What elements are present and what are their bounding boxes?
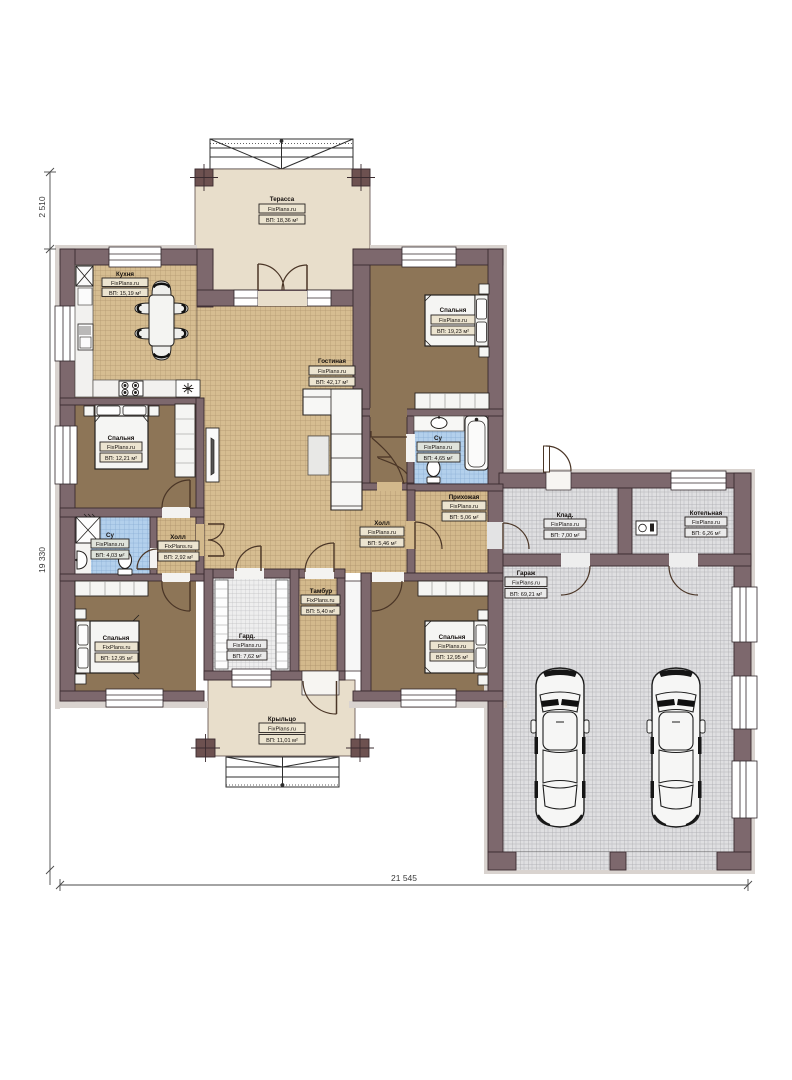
svg-text:2 510: 2 510: [37, 196, 47, 218]
svg-text:Холл: Холл: [374, 520, 390, 527]
svg-text:FixPlans.ru: FixPlans.ru: [318, 369, 346, 375]
svg-text:ВП: 15,19 м²: ВП: 15,19 м²: [109, 291, 141, 297]
svg-text:Прихожая: Прихожая: [449, 494, 480, 501]
svg-text:Крыльцо: Крыльцо: [268, 716, 296, 723]
svg-text:ВП: 4,65 м²: ВП: 4,65 м²: [423, 456, 452, 462]
svg-text:FixPlans.ru: FixPlans.ru: [692, 520, 720, 526]
svg-text:ВП: 7,00 м²: ВП: 7,00 м²: [550, 533, 579, 539]
svg-text:FixPlans.ru: FixPlans.ru: [424, 445, 452, 451]
svg-text:FixPlans.ru: FixPlans.ru: [307, 598, 335, 604]
svg-text:Су: Су: [106, 532, 114, 539]
svg-text:Спальня: Спальня: [108, 435, 135, 442]
svg-text:Тамбур: Тамбур: [310, 588, 333, 595]
svg-text:21 545: 21 545: [391, 873, 417, 883]
svg-text:FixPlans.ru: FixPlans.ru: [268, 727, 296, 733]
svg-text:FixPlans.ru: FixPlans.ru: [103, 645, 131, 651]
svg-text:FixPlans.ru: FixPlans.ru: [268, 207, 296, 213]
svg-text:19 330: 19 330: [37, 547, 47, 573]
svg-text:FixPlans.ru: FixPlans.ru: [450, 504, 478, 510]
svg-text:FixPlans.ru: FixPlans.ru: [439, 318, 467, 324]
svg-text:Котельная: Котельная: [690, 510, 723, 517]
svg-text:FixPlans.ru: FixPlans.ru: [551, 522, 579, 528]
svg-text:ВП: 18,36 м²: ВП: 18,36 м²: [266, 218, 298, 224]
svg-text:ВП: 4,03 м²: ВП: 4,03 м²: [95, 553, 124, 559]
svg-text:ВП: 11,01 м²: ВП: 11,01 м²: [266, 738, 298, 744]
svg-text:ВП: 42,17 м²: ВП: 42,17 м²: [316, 380, 348, 386]
svg-text:Спальня: Спальня: [439, 634, 466, 641]
svg-text:Спальня: Спальня: [440, 307, 467, 314]
svg-text:Спальня: Спальня: [103, 635, 130, 642]
svg-text:Терасса: Терасса: [270, 196, 295, 203]
svg-text:Гард.: Гард.: [239, 633, 255, 640]
svg-text:FixPlans.ru: FixPlans.ru: [165, 544, 193, 550]
svg-text:Су: Су: [434, 435, 442, 442]
svg-text:FixPlans.ru: FixPlans.ru: [111, 281, 139, 287]
svg-text:ВП: 6,26 м²: ВП: 6,26 м²: [691, 531, 720, 537]
svg-text:ВП: 5,40 м²: ВП: 5,40 м²: [306, 609, 335, 615]
svg-text:FixPlans.ru: FixPlans.ru: [107, 445, 135, 451]
svg-text:ВП: 7,62 м²: ВП: 7,62 м²: [232, 654, 261, 660]
svg-text:ВП: 19,23 м²: ВП: 19,23 м²: [437, 329, 469, 335]
svg-text:ВП: 2,92 м²: ВП: 2,92 м²: [164, 555, 193, 561]
svg-text:FixPlans.ru: FixPlans.ru: [96, 542, 124, 548]
svg-text:ВП: 12,95 м²: ВП: 12,95 м²: [436, 655, 468, 661]
svg-text:Холл: Холл: [170, 534, 186, 541]
svg-text:ВП: 69,21 м²: ВП: 69,21 м²: [510, 592, 542, 598]
svg-text:ВП: 5,46 м²: ВП: 5,46 м²: [367, 541, 396, 547]
svg-text:FixPlans.ru: FixPlans.ru: [438, 644, 466, 650]
svg-text:FixPlans.ru: FixPlans.ru: [512, 581, 540, 587]
svg-text:Гостиная: Гостиная: [318, 358, 346, 365]
svg-text:Кухня: Кухня: [116, 271, 134, 278]
svg-text:Клад.: Клад.: [557, 512, 574, 519]
svg-text:FixPlans.ru: FixPlans.ru: [233, 643, 261, 649]
svg-text:FixPlans.ru: FixPlans.ru: [368, 530, 396, 536]
svg-text:ВП: 12,21 м²: ВП: 12,21 м²: [105, 456, 137, 462]
svg-text:ВП: 12,95 м²: ВП: 12,95 м²: [100, 656, 132, 662]
svg-text:Гараж: Гараж: [517, 570, 536, 577]
svg-text:ВП: 5,06 м²: ВП: 5,06 м²: [449, 515, 478, 521]
